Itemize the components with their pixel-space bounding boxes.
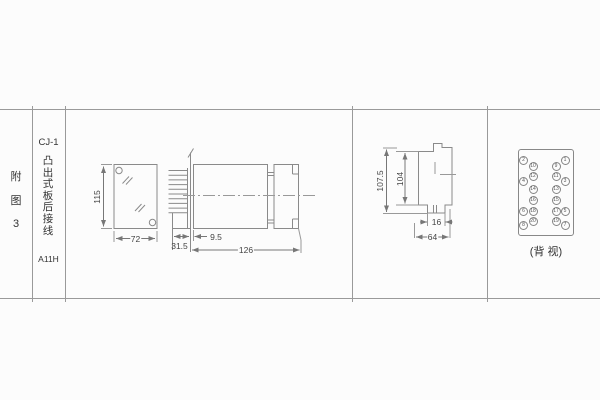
terminal-pin: 15 [552,196,561,205]
terminal-pin: 12 [529,172,538,181]
terminal-pin: 18 [529,207,538,216]
terminal-pin: 3 [561,177,570,186]
mounting-description: 凸出式板后接线 [41,156,55,237]
terminal-pin: 2 [519,156,528,165]
cutout-view-dim-lines [387,150,453,238]
dim-cutout-width: 64 [427,233,438,242]
dim-cutout-tab-width: 16 [431,218,442,227]
terminal-pin: 7 [561,221,570,230]
terminal-pin: 8 [519,221,528,230]
terminal-pin: 9 [552,162,561,171]
terminal-pin: 20 [529,217,538,226]
dim-side-projection: 31.5 [170,241,189,250]
side-view-dim-lines [174,237,300,251]
code-label: A11H [32,254,65,264]
terminal-pin: 13 [552,185,561,194]
terminal-pin: 16 [529,196,538,205]
terminal-pin: 1 [561,156,570,165]
terminal-pin: 19 [552,217,561,226]
dim-front-height: 115 [93,189,102,205]
front-view-lines [101,165,157,243]
back-view-drawing: 1 2 3 4 5 6 7 8 9 10 11 12 13 14 15 16 1… [518,149,574,236]
terminal-pin: 5 [561,207,570,216]
table-rules [0,106,600,302]
dim-cutout-outer-height: 107.5 [375,169,384,192]
dim-side-depth: 126 [238,246,254,255]
figure-index-label: 附图3 [9,166,23,237]
figure-sheet: 附图3 CJ-1 凸出式板后接线 A11H 115 72 9.5 31.5 12… [0,0,600,400]
side-view-lines [169,149,302,254]
dim-side-gap: 9.5 [209,233,223,242]
drawing-canvas [0,0,600,400]
model-label: CJ-1 [32,137,65,148]
terminal-pin: 6 [519,207,528,216]
dim-cutout-inner-height: 104 [395,170,404,186]
front-view-dim-lines [104,167,156,239]
terminal-pin: 17 [552,207,561,216]
terminal-pin: 11 [552,172,561,181]
dim-front-width: 72 [130,234,141,243]
terminal-pin: 4 [519,177,528,186]
back-view-caption: (背 视) [530,243,562,259]
terminal-pin: 14 [529,185,538,194]
terminal-pin: 10 [529,162,538,171]
cutout-view-lines [383,144,456,239]
